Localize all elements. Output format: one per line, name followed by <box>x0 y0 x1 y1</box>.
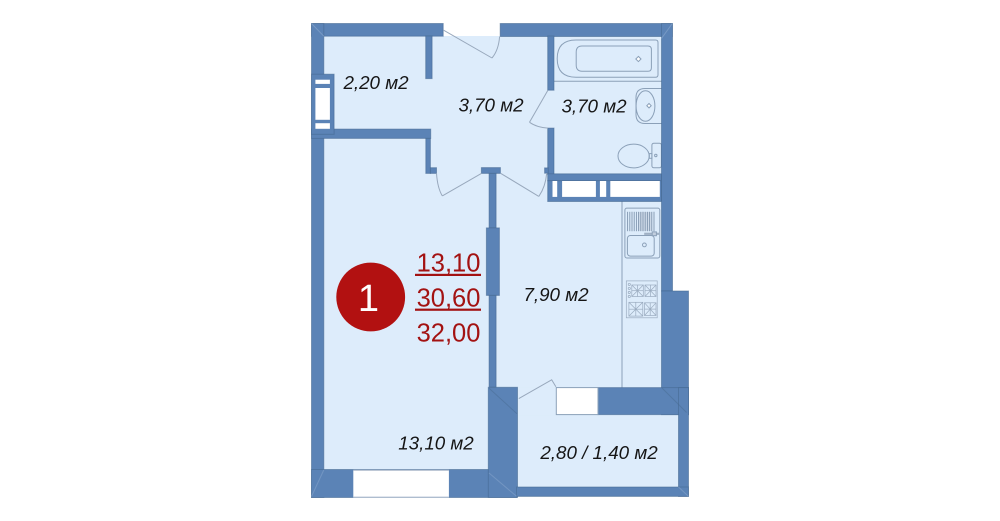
svg-text:3,70 м2: 3,70 м2 <box>458 95 524 116</box>
svg-text:13,10 м2: 13,10 м2 <box>398 432 474 453</box>
svg-text:2,80 / 1,40 м2: 2,80 / 1,40 м2 <box>539 442 658 463</box>
svg-text:13,10: 13,10 <box>417 250 481 278</box>
svg-text:7,90 м2: 7,90 м2 <box>523 284 589 305</box>
svg-text:30,60: 30,60 <box>417 285 481 313</box>
svg-text:32,00: 32,00 <box>417 319 481 347</box>
svg-text:3,70 м2: 3,70 м2 <box>561 96 627 117</box>
svg-text:1: 1 <box>358 278 379 320</box>
svg-text:2,20 м2: 2,20 м2 <box>342 72 409 93</box>
